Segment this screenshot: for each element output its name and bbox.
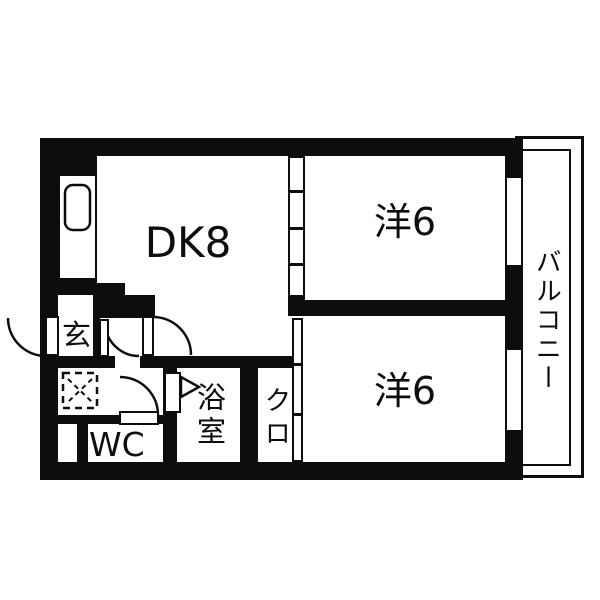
entrance-door-swing-icon (8, 318, 46, 356)
entrance-label: 玄 (62, 320, 91, 350)
hall-door-swing-icon (105, 322, 139, 356)
doors-and-fixtures-layer (0, 0, 600, 600)
entrance-door-leaf (46, 317, 58, 355)
closet-label: クロ (260, 386, 288, 452)
washing-machine-space-icon (63, 373, 97, 408)
wc-door-swing-icon (120, 377, 158, 415)
dk-door-swing-icon (153, 317, 191, 355)
floor-plan: DK8 洋6 洋6 玄 WC 浴室 クロ バルコニー (0, 0, 600, 600)
wc-door-leaf (120, 412, 158, 424)
western-room-top-label: 洋6 (345, 203, 465, 243)
wc-label: WC (89, 428, 145, 463)
kitchen-sink-icon (65, 185, 90, 230)
balcony-label: バルコニー (532, 248, 559, 393)
hall-door-leaf (100, 320, 108, 356)
bathroom-label: 浴室 (194, 382, 224, 450)
bathroom-door-leaf (165, 373, 180, 412)
dk-room-label: DK8 (128, 221, 248, 265)
dk-door-leaf (143, 317, 153, 355)
western-room-bottom-label: 洋6 (345, 372, 465, 412)
washing-machine-cross-icon (68, 379, 92, 402)
